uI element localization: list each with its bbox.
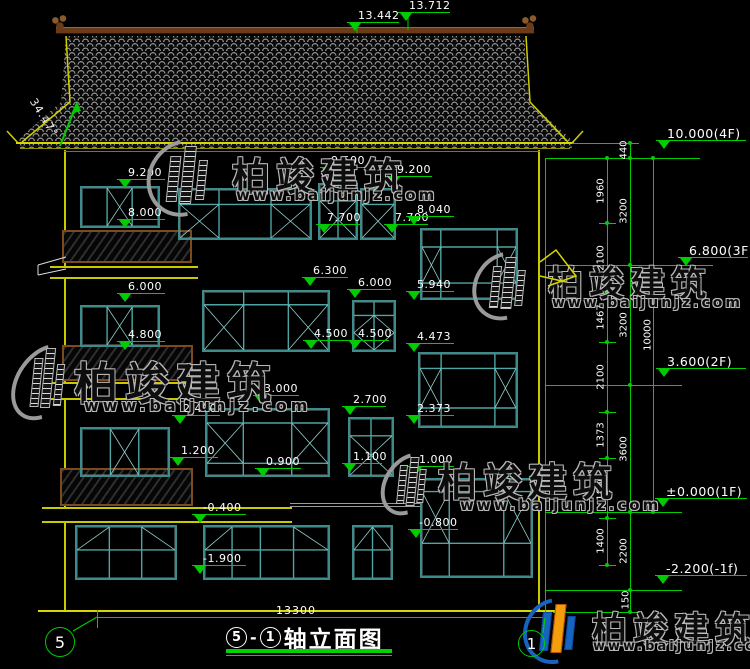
elevation-marker: 6.000 [117, 281, 165, 302]
elevation-value: 8.040 [406, 204, 454, 216]
dim-tick-dot [628, 383, 632, 387]
overall-width-dim: 13300 [276, 604, 316, 617]
dim-value: 1400 [596, 528, 607, 553]
dim-value: 3200 [619, 198, 630, 223]
elevation-marker: -0.800 [408, 517, 458, 538]
balcony-slab [42, 507, 292, 523]
elevation-value: 0.900 [255, 456, 301, 468]
elevation-value: -0.400 [192, 502, 246, 514]
dim-value: 10000 [643, 319, 654, 351]
elevation-value: 3.600(2F) [656, 355, 746, 368]
elevation-value: ±0.000(1F) [655, 485, 747, 498]
elevation-marker: 13.712 [398, 0, 451, 21]
dim-tick-dot [605, 516, 609, 520]
elevation-marker: 8.040 [406, 204, 454, 225]
dim-tick-dot [605, 156, 609, 160]
watermark-logo [474, 250, 536, 322]
elevation-value: 6.000 [117, 281, 165, 293]
dim-value: 2100 [596, 364, 607, 389]
title-dash: - [250, 628, 257, 647]
elevation-marker: 3.600(2F) [656, 355, 746, 377]
elevation-marker: 4.500 [347, 328, 392, 349]
watermark-url: www.baijunjz.com [552, 295, 743, 311]
dim-line [545, 385, 682, 386]
elevation-value: 7.700 [316, 212, 361, 224]
elevation-value: 1.100 [342, 451, 387, 463]
elevation-value: 6.300 [302, 265, 348, 277]
ridge-ornament-right [520, 14, 538, 30]
elevation-value: 10.000(4F) [656, 127, 746, 140]
axis-bubble-1: 1 [518, 630, 545, 657]
elevation-value: 1.200 [170, 445, 218, 457]
elevation-value: 2.700 [342, 394, 387, 406]
dim-value: 1960 [596, 178, 607, 203]
window [75, 525, 177, 580]
title-underline [226, 649, 392, 653]
elevation-value: 13.442 [347, 10, 400, 22]
elevation-marker: 1.100 [342, 451, 387, 472]
elevation-value: 2.373 [406, 403, 454, 415]
elevation-value: 5.940 [406, 279, 454, 291]
elevation-value: -1.900 [192, 553, 246, 565]
elevation-marker: 4.800 [117, 329, 165, 350]
elevation-marker: 4.500 [303, 328, 348, 349]
roof-ridge [56, 27, 534, 34]
elevation-marker: ±0.000(1F) [655, 485, 747, 507]
dim-tick-dot [605, 410, 609, 414]
dim-value: 3200 [619, 312, 630, 337]
dim-line [545, 590, 682, 591]
watermark-logo [384, 450, 434, 518]
elevation-marker: 6.000 [347, 277, 392, 298]
elevation-value: 6.000 [347, 277, 392, 289]
eave-line [16, 142, 574, 144]
roof-tile-pattern [18, 32, 572, 148]
dim-tick-dot [605, 563, 609, 567]
elevation-marker: 0.900 [255, 456, 301, 477]
elevation-marker: 13.442 [347, 10, 400, 31]
elevation-value: 4.500 [303, 328, 348, 340]
balcony-railing [62, 230, 192, 263]
elevation-marker: 5.940 [406, 279, 454, 300]
watermark-logo [148, 138, 220, 218]
dim-extension-line [97, 610, 98, 628]
elevation-value: 4.500 [347, 328, 392, 340]
wall-right [538, 150, 540, 612]
watermark-url: www.baijunjz.com [236, 186, 437, 204]
elevation-value: -2.200(-1f) [655, 562, 747, 575]
title-axis-start: 5 [226, 627, 247, 648]
dim-value: 3600 [619, 436, 630, 461]
elevation-marker: 2.700 [342, 394, 387, 415]
title-axis-end: 1 [260, 627, 281, 648]
title-underline-thin [226, 655, 392, 656]
dim-extension-line [630, 143, 631, 612]
ridge-ornament-left [50, 14, 68, 30]
dim-line [97, 617, 545, 618]
dim-tick-dot [605, 340, 609, 344]
elevation-value: 4.800 [117, 329, 165, 341]
elevation-value: 4.473 [406, 331, 454, 343]
dim-value: 440 [619, 140, 630, 159]
dim-value: 2200 [619, 538, 630, 563]
elevation-marker: 7.700 [316, 212, 361, 233]
axis-bubble-5: 5 [45, 627, 75, 657]
watermark-url: www.baijunjz.com [460, 496, 661, 514]
dim-value: 1373 [596, 422, 607, 447]
elevation-marker: -0.400 [192, 502, 246, 523]
window [80, 427, 170, 477]
elevation-marker: 1.200 [170, 445, 218, 466]
elevation-marker: 2.373 [406, 403, 454, 424]
elevation-value: -0.800 [408, 517, 458, 529]
watermark-url: www.baijunjz.com [593, 639, 750, 654]
watermark-logo [16, 340, 74, 424]
balcony-slab [50, 266, 198, 279]
watermark-url: www.baijunjz.com [84, 396, 311, 415]
elevation-marker: 10.000(4F) [656, 127, 746, 149]
window [352, 525, 393, 580]
dim-tick-dot [651, 156, 655, 160]
elevation-drawing: 34.47° 196021001467210013731800140044032… [0, 0, 750, 669]
elevation-marker: 6.300 [302, 265, 348, 286]
elevation-value: 13.712 [398, 0, 451, 12]
dim-tick-dot [605, 221, 609, 225]
elevation-marker: -1.900 [192, 553, 246, 574]
elevation-marker: 4.473 [406, 331, 454, 352]
elevation-marker: -2.200(-1f) [655, 562, 747, 584]
